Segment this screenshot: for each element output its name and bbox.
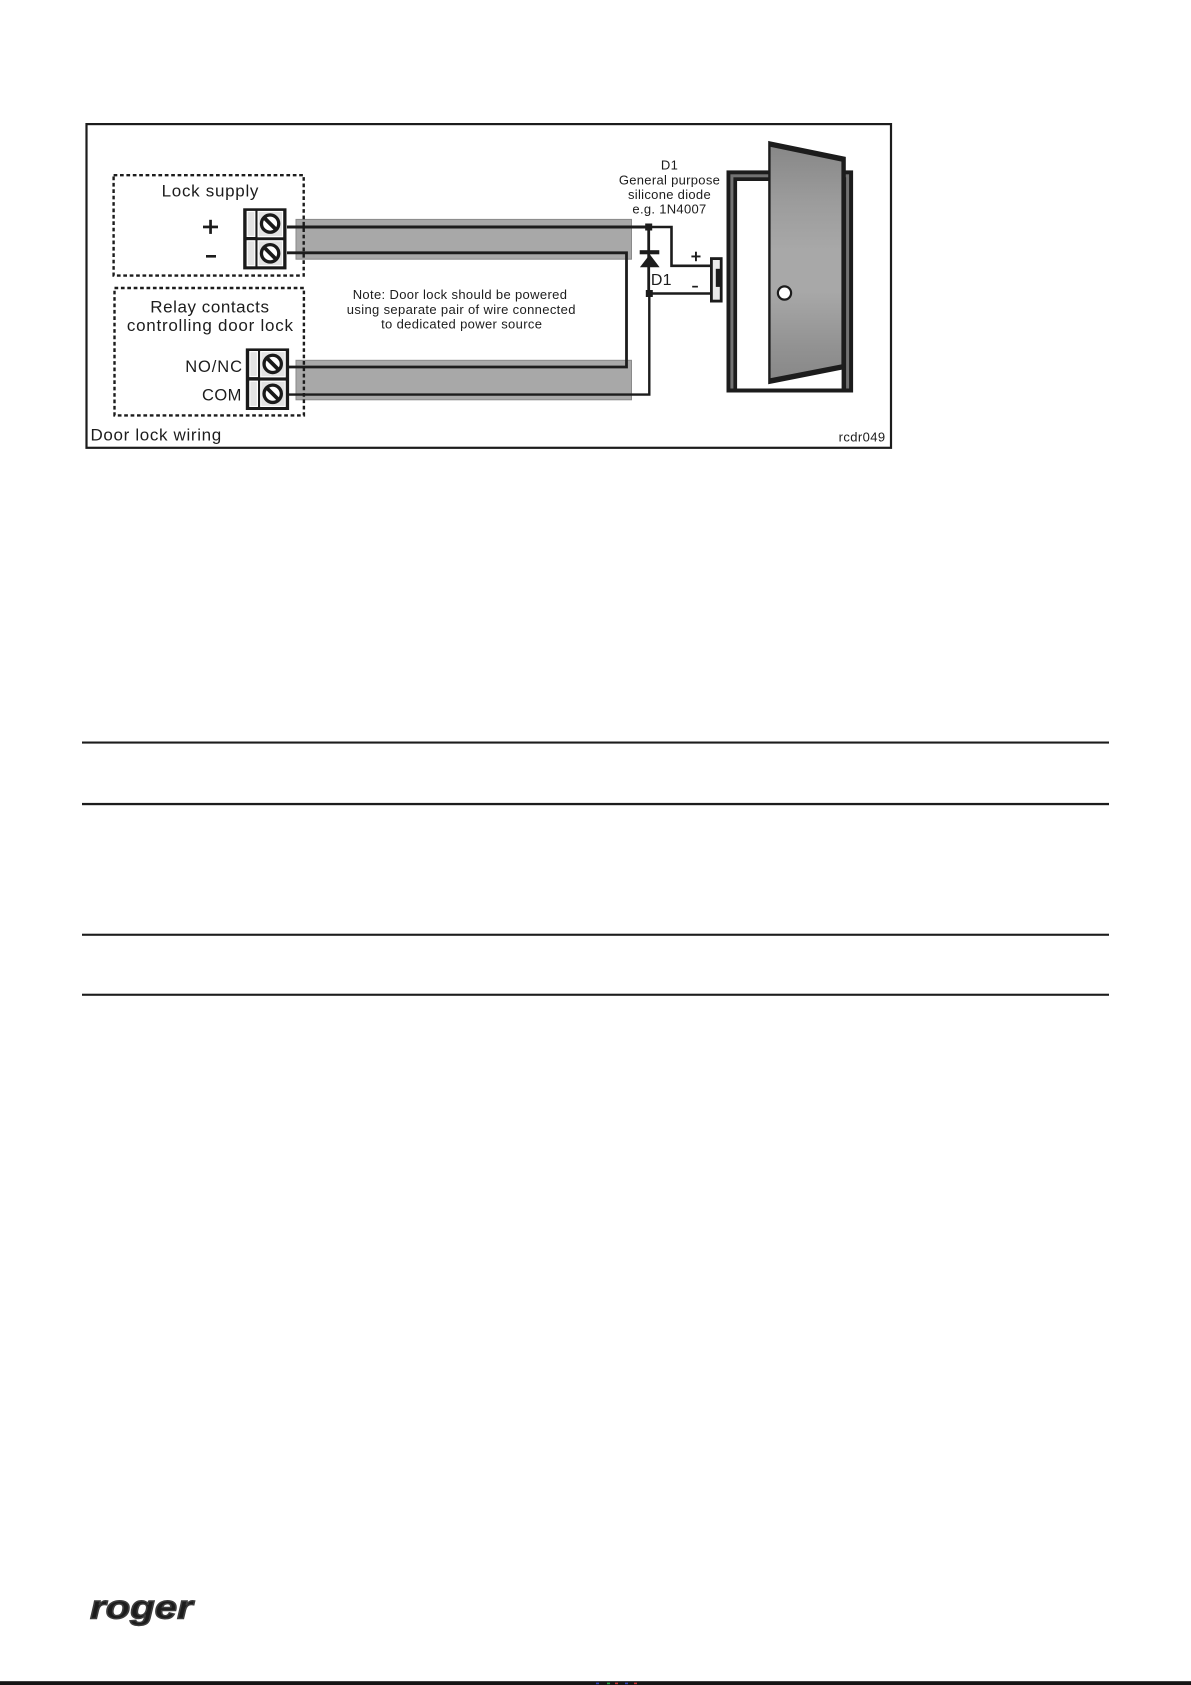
svg-text:rcdr049: rcdr049 — [839, 430, 886, 445]
svg-text:Lock supply: Lock supply — [162, 182, 259, 201]
svg-text:silicone diode: silicone diode — [628, 187, 711, 202]
svg-text:Note: Door lock should be powe: Note: Door lock should be powered — [353, 287, 568, 302]
svg-text:e.g. 1N4007: e.g. 1N4007 — [632, 202, 706, 217]
svg-text:using separate pair of wire co: using separate pair of wire connected — [347, 302, 576, 317]
svg-text:NO/NC: NO/NC — [185, 358, 243, 376]
svg-text:to dedicated power source: to dedicated power source — [381, 317, 542, 332]
svg-text:roger: roger — [90, 1589, 195, 1626]
svg-text:Door lock wiring: Door lock wiring — [91, 426, 222, 445]
svg-text:D1: D1 — [651, 272, 672, 289]
svg-text:controlling door lock: controlling door lock — [127, 316, 294, 335]
svg-text:Relay contacts: Relay contacts — [150, 298, 269, 317]
svg-text:COM: COM — [202, 387, 242, 405]
svg-text:General purpose: General purpose — [619, 172, 720, 187]
svg-text:D1: D1 — [661, 158, 678, 173]
